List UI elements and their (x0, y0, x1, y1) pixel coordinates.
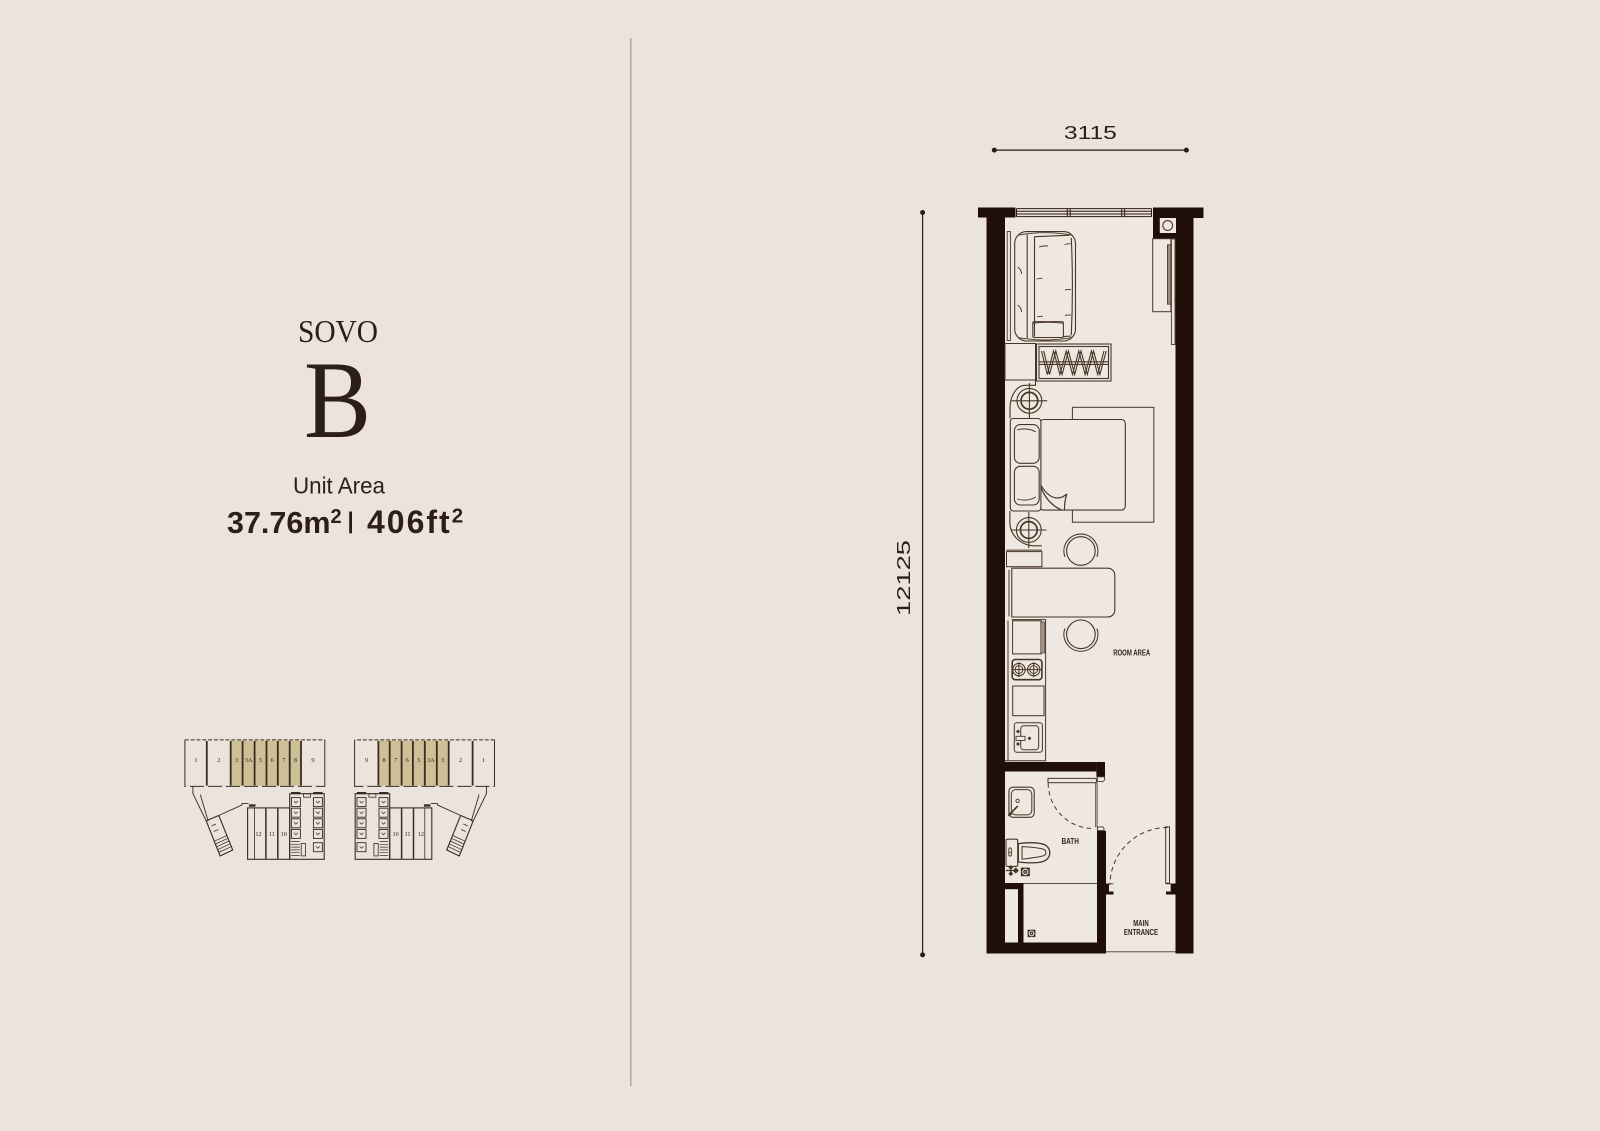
svg-text:7: 7 (282, 757, 285, 764)
svg-text:9: 9 (311, 757, 314, 764)
svg-text:2: 2 (217, 757, 220, 764)
svg-text:10: 10 (393, 831, 399, 838)
svg-text:BATH: BATH (1061, 837, 1079, 846)
svg-text:6: 6 (271, 757, 274, 764)
svg-text:5: 5 (259, 757, 262, 764)
svg-text:1: 1 (482, 757, 485, 764)
svg-text:12: 12 (418, 831, 424, 838)
svg-text:ENTRANCE: ENTRANCE (1124, 928, 1159, 937)
svg-text:1: 1 (194, 757, 197, 764)
svg-text:B: B (304, 339, 371, 461)
svg-text:3: 3 (441, 757, 444, 764)
svg-text:ROOM AREA: ROOM AREA (1113, 648, 1150, 657)
svg-text:Unit Area: Unit Area (293, 473, 385, 499)
svg-text:5: 5 (417, 757, 420, 764)
svg-text:7: 7 (394, 757, 397, 764)
svg-text:3115: 3115 (1064, 123, 1117, 143)
svg-text:406ft2: 406ft2 (367, 504, 465, 540)
svg-text:37.76m2: 37.76m2 (227, 506, 342, 540)
svg-text:MAIN: MAIN (1133, 919, 1149, 928)
svg-text:3A: 3A (245, 757, 253, 764)
svg-text:10: 10 (281, 831, 287, 838)
svg-text:12: 12 (255, 831, 261, 838)
svg-text:11: 11 (269, 831, 275, 838)
svg-text:12125: 12125 (894, 540, 914, 616)
svg-text:3: 3 (235, 757, 238, 764)
svg-text:6: 6 (406, 757, 409, 764)
svg-text:8: 8 (294, 757, 297, 764)
svg-text:3A: 3A (427, 757, 435, 764)
svg-text:2: 2 (459, 757, 462, 764)
svg-text:8: 8 (382, 757, 385, 764)
svg-text:9: 9 (365, 757, 368, 764)
svg-text:11: 11 (405, 831, 411, 838)
